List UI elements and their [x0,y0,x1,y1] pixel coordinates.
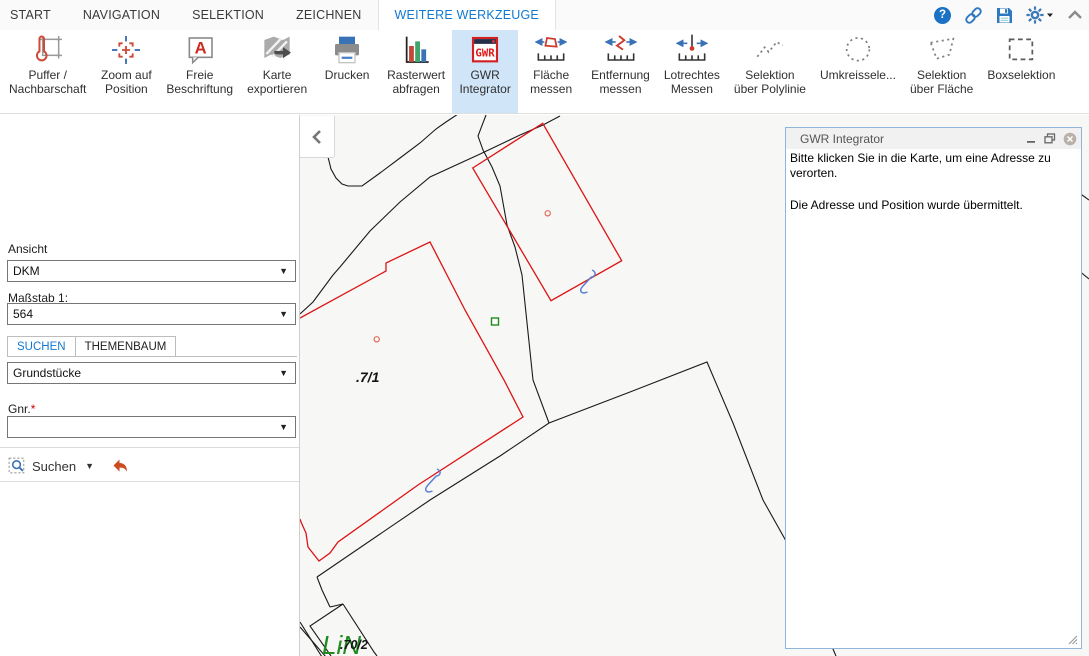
chevron-down-icon: ▼ [279,309,295,319]
ribbon-button-label: Selektionüber Fläche [910,69,973,96]
entfernung-messen-icon [605,34,637,66]
map-shape-boundary-curve-topleft [328,115,458,186]
ribbon-button-label: Puffer /Nachbarschaft [9,69,86,96]
drucken-icon [331,34,363,66]
selektion-flaeche-icon [926,34,958,66]
restore-icon[interactable] [1044,133,1056,144]
sidebar-collapse-button[interactable] [300,116,335,158]
settings-icon[interactable] [1026,6,1054,24]
required-marker: * [31,402,36,416]
ribbon-button-karte-exportieren[interactable]: Karteexportieren [240,30,314,113]
undo-button[interactable] [111,458,129,474]
zoom-auf-position-icon [110,34,142,66]
resize-grip[interactable] [1068,635,1078,645]
panel-message-1: Bitte klicken Sie in die Karte, um eine … [790,151,1077,181]
close-icon[interactable] [1063,132,1077,146]
application-window: STARTNAVIGATIONSELEKTIONZEICHNENWEITERE … [0,0,1089,656]
flaeche-messen-icon [535,34,567,66]
panel-body: Bitte klicken Sie in die Karte, um eine … [786,149,1081,215]
minimize-icon[interactable] [1026,133,1037,144]
panel-title: GWR Integrator [800,132,884,146]
ribbon-button-label: Boxselektion [987,69,1055,83]
ribbon-button-umkreisselektion[interactable]: Umkreissele... [813,30,903,113]
gwr-integrator-icon: GWR [469,34,501,66]
karte-exportieren-icon [261,34,293,66]
map-label: .70/2 [340,638,368,652]
divider [0,447,299,448]
ribbon-button-label: Zoom aufPosition [101,69,152,96]
menu-tab-zeichnen[interactable]: ZEICHNEN [280,0,378,30]
menu-tab-navigation[interactable]: NAVIGATION [67,0,176,30]
ribbon-button-label: Entfernungmessen [591,69,650,96]
collapse-ribbon-icon[interactable] [1067,9,1083,21]
ribbon-button-boxselektion[interactable]: Boxselektion [980,30,1062,113]
ribbon-button-label: Drucken [325,69,370,83]
panel-title-bar[interactable]: GWR Integrator [786,128,1081,149]
ribbon-button-lotrechtes-messen[interactable]: LotrechtesMessen [657,30,727,113]
sidebar-tabs: SUCHEN THEMENBAUM [7,336,297,357]
ansicht-select[interactable]: DKM ▼ [7,260,296,282]
panel-message-2: Die Adresse und Position wurde übermitte… [790,198,1077,213]
search-row: Suchen ▼ [8,453,129,479]
chevron-down-icon: ▼ [279,266,295,276]
chevron-down-icon: ▼ [279,368,295,378]
search-button-label: Suchen [32,459,76,474]
save-icon[interactable] [996,7,1013,24]
puffer-nachbarschaft-icon [32,34,64,66]
chevron-down-icon: ▼ [279,422,295,432]
divider [0,481,299,482]
rasterwert-abfragen-icon [400,34,432,66]
map-shape-road-edge-outer [300,116,560,314]
ribbon-button-zoom-auf-position[interactable]: Zoom aufPosition [93,30,159,113]
lotrechtes-messen-icon [676,34,708,66]
map-shape-building-outline-red [473,123,622,300]
ribbon-button-label: Umkreissele... [820,69,896,83]
menu-tab-weitere-werkzeuge[interactable]: WEITERE WERKZEUGE [378,0,556,30]
ribbon-button-label: LotrechtesMessen [664,69,720,96]
ribbon-button-selektion-polylinie[interactable]: Selektionüber Polylinie [727,30,813,113]
search-icon [8,457,26,475]
ribbon-button-flaeche-messen[interactable]: Flächemessen [518,30,584,113]
ribbon-button-gwr-integrator[interactable]: GWRGWRIntegrator [452,30,518,113]
map-shape-road-edge-inner [478,115,549,423]
map-shape-boundary-bottom-diagonal [317,362,836,656]
undo-icon [111,458,129,474]
ansicht-value: DKM [13,264,40,278]
svg-text:A: A [194,39,206,58]
massstab-select[interactable]: 564 ▼ [7,303,296,325]
left-sidebar: Ansicht DKM ▼ Maßstab 1: 564 ▼ SUCHEN TH… [0,115,300,656]
boxselektion-icon [1005,34,1037,66]
menu-tab-start[interactable]: START [0,0,67,30]
ribbon-button-label: Flächemessen [530,69,572,96]
ribbon-button-label: Karteexportieren [247,69,307,96]
map-point-marker-red [545,211,550,216]
freie-beschriftung-icon: A [184,34,216,66]
ribbon-button-rasterwert-abfragen[interactable]: Rasterwertabfragen [380,30,452,113]
layer-value: Grundstücke [13,366,81,380]
map-label: .7/1 [356,369,380,385]
settings-caret-icon [1046,11,1054,19]
ribbon-button-drucken[interactable]: Drucken [314,30,380,113]
ribbon-button-entfernung-messen[interactable]: Entfernungmessen [584,30,657,113]
ribbon-button-puffer-nachbarschaft[interactable]: Puffer /Nachbarschaft [2,30,93,113]
tab-themenbaum[interactable]: THEMENBAUM [76,336,177,356]
map-shape-boundary-corner-drop [317,577,330,607]
menu-tab-selektion[interactable]: SELEKTION [176,0,280,30]
layer-select[interactable]: Grundstücke ▼ [7,362,296,384]
titlebar-icons: ? [934,0,1083,30]
chevron-left-icon [310,128,324,146]
menu-bar: STARTNAVIGATIONSELEKTIONZEICHNENWEITERE … [0,0,1089,31]
map-point-marker-green [492,318,499,325]
umkreisselektion-icon [842,34,874,66]
link-icon[interactable] [964,6,983,25]
gnr-label: Gnr.* [8,402,35,416]
help-icon[interactable]: ? [934,7,951,24]
ribbon-toolbar: Puffer /NachbarschaftZoom aufPositionAFr… [0,30,1089,114]
ansicht-label: Ansicht [8,242,47,256]
panel-window-buttons [1026,132,1077,146]
ribbon-button-freie-beschriftung[interactable]: AFreieBeschriftung [159,30,240,113]
ribbon-button-selektion-flaeche[interactable]: Selektionüber Fläche [903,30,980,113]
gnr-select[interactable]: ▼ [7,416,296,438]
gwr-integrator-panel: GWR Integrator Bitte klicken Sie in die … [785,127,1082,649]
ribbon-button-label: FreieBeschriftung [166,69,233,96]
ribbon-button-label: GWRIntegrator [459,69,510,96]
massstab-value: 564 [13,307,33,321]
search-button[interactable]: Suchen ▼ [8,457,94,475]
map-point-marker-red [374,337,379,342]
tab-suchen[interactable]: SUCHEN [7,336,76,356]
ribbon-button-label: Rasterwertabfragen [387,69,445,96]
selektion-polylinie-icon [754,34,786,66]
svg-text:GWR: GWR [476,46,496,59]
chevron-down-icon: ▼ [82,461,94,471]
ribbon-button-label: Selektionüber Polylinie [734,69,806,96]
map-z-symbol [581,270,595,293]
